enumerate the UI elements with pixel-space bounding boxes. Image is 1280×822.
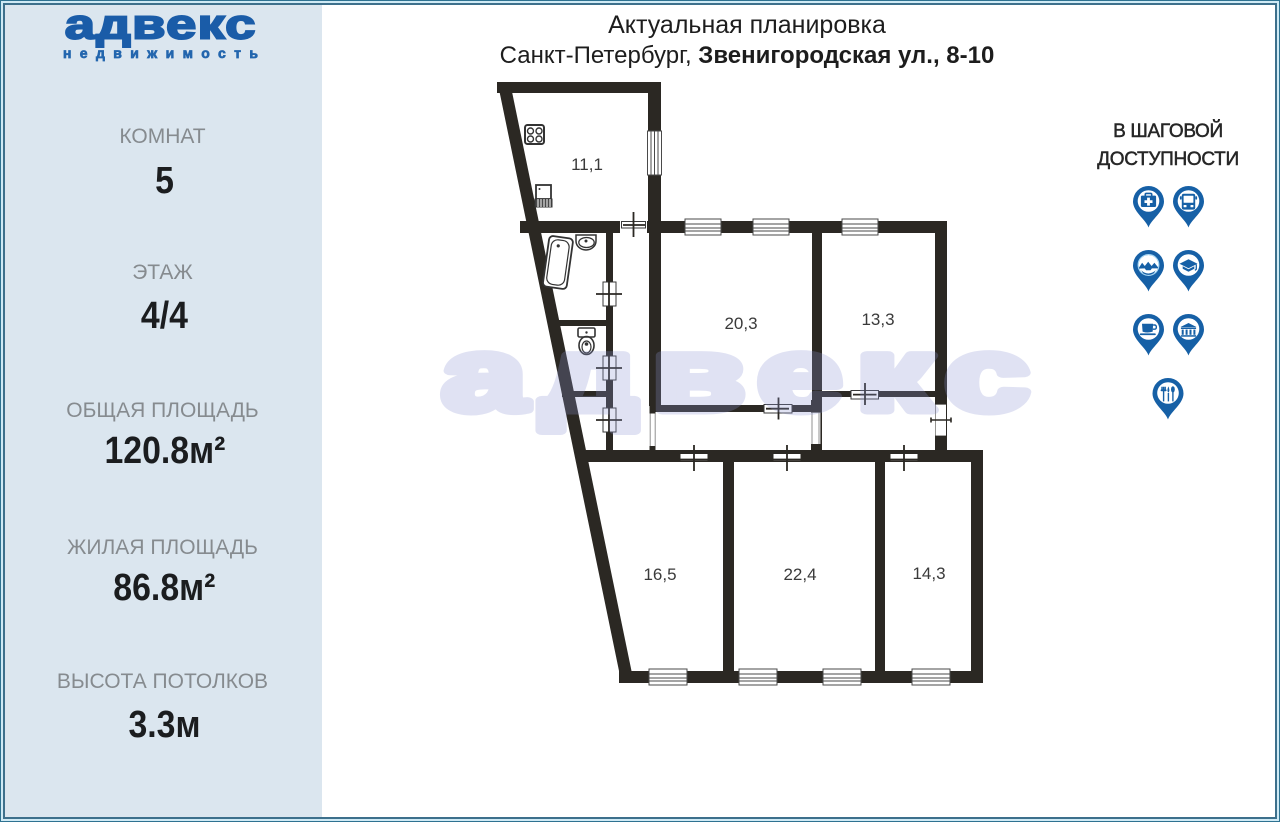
svg-text:16,5: 16,5 xyxy=(643,565,676,584)
svg-text:14,3: 14,3 xyxy=(912,564,945,583)
svg-text:22,4: 22,4 xyxy=(783,565,816,584)
svg-text:адвекс: адвекс xyxy=(442,318,1044,433)
svg-text:11,1: 11,1 xyxy=(571,155,603,174)
